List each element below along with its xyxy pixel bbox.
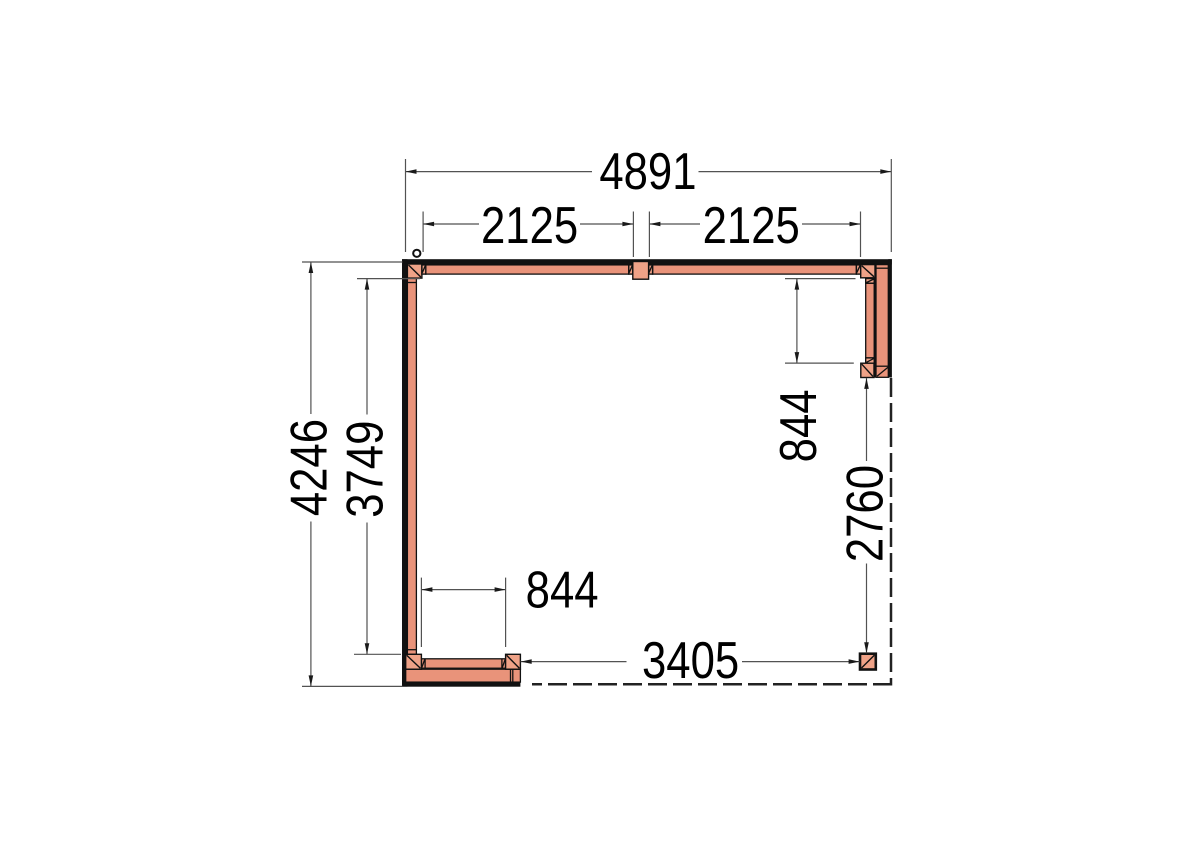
svg-text:3405: 3405 bbox=[642, 632, 739, 689]
svg-text:844: 844 bbox=[771, 389, 828, 462]
svg-text:2125: 2125 bbox=[481, 197, 578, 254]
svg-text:3749: 3749 bbox=[337, 421, 394, 518]
svg-text:2760: 2760 bbox=[837, 465, 894, 562]
svg-text:4891: 4891 bbox=[599, 144, 696, 201]
svg-text:4246: 4246 bbox=[281, 419, 338, 516]
svg-text:2125: 2125 bbox=[703, 197, 800, 254]
svg-text:844: 844 bbox=[526, 562, 599, 619]
